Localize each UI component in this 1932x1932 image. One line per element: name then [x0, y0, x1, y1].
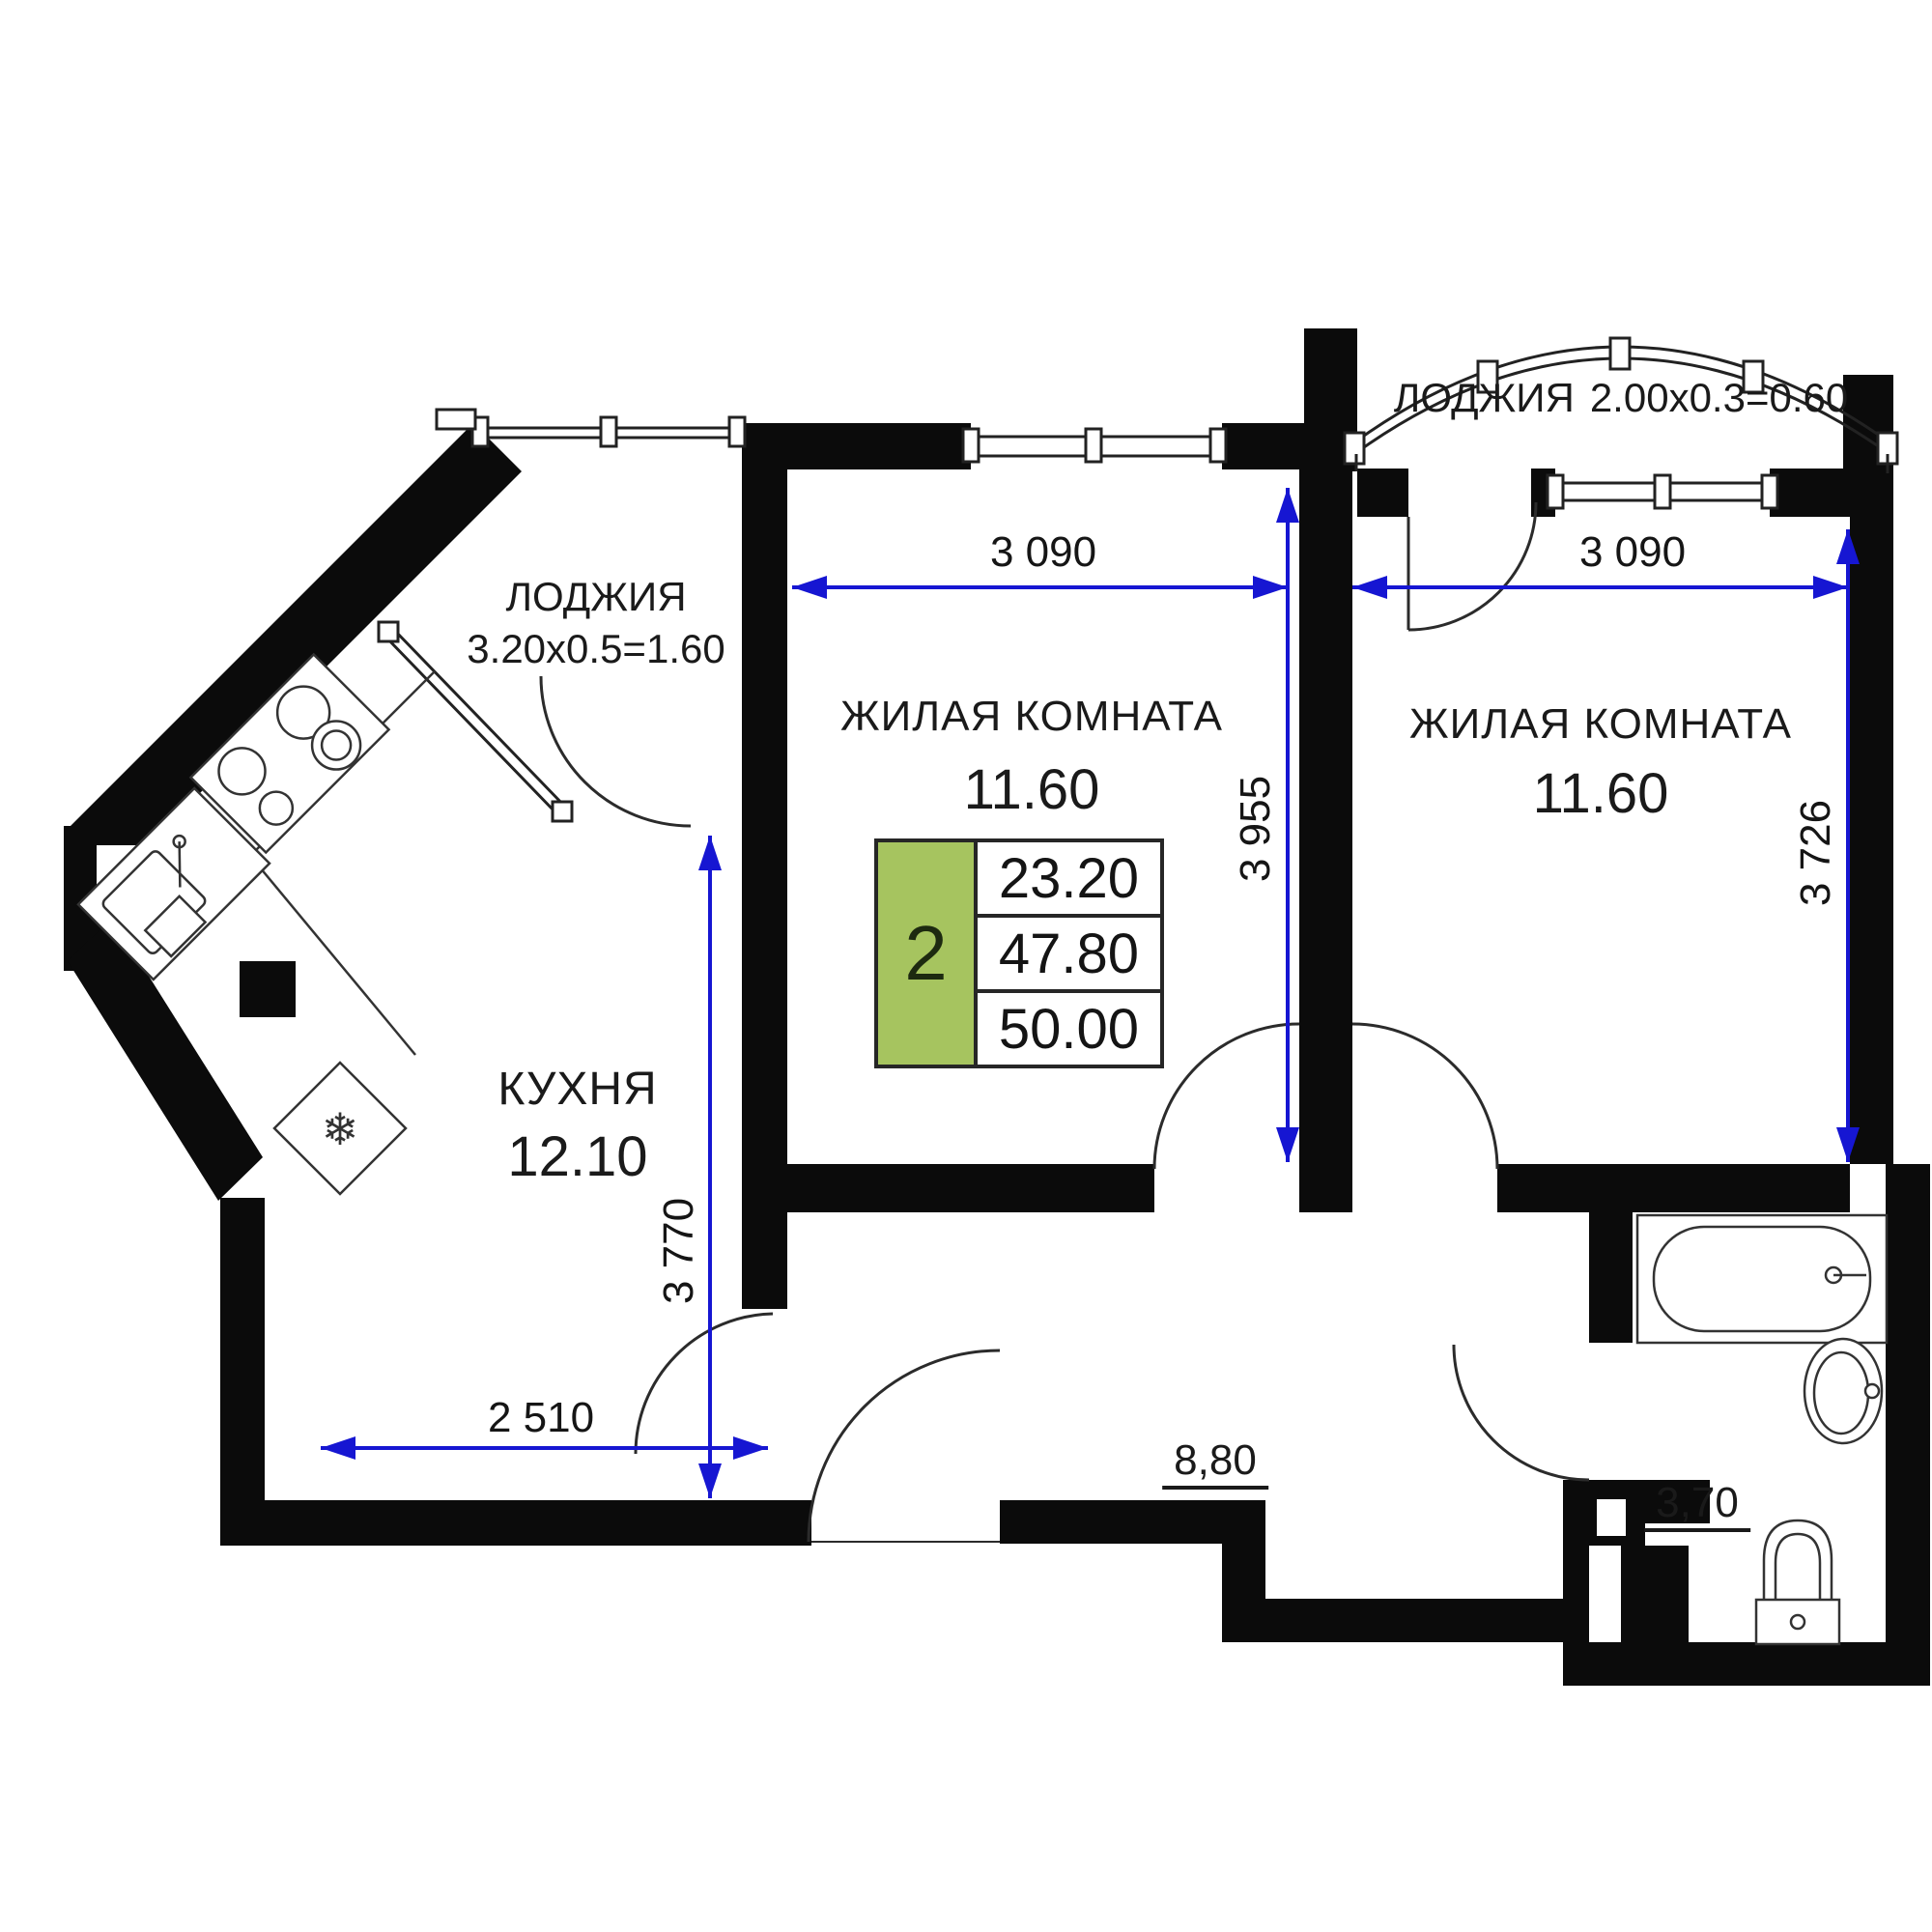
railing-post	[729, 417, 745, 446]
living-room-1-name: ЖИЛАЯ КОМНАТА	[840, 696, 1223, 738]
door-arc-bathroom	[1454, 1345, 1589, 1480]
dim-living2-width: 3 090	[1579, 531, 1686, 574]
loggia-left-size: 3.20x0.5=1.60	[467, 629, 724, 669]
door-arc-living1	[1154, 1024, 1299, 1169]
kitchen-area: 12.10	[507, 1129, 647, 1185]
living-area-cell: 23.20	[978, 842, 1160, 918]
kitchen-counter-edge	[241, 845, 415, 1055]
dim-arrow	[1253, 576, 1288, 599]
dim-living1-width: 3 090	[990, 531, 1096, 574]
wall-pier	[240, 961, 296, 1017]
dim-arrow	[698, 1463, 722, 1498]
total-area-cell: 50.00	[978, 993, 1160, 1065]
wall	[220, 1198, 265, 1502]
apartment-info-table: 2 23.20 47.80 50.00	[874, 838, 1164, 1068]
living-room-2-name: ЖИЛАЯ КОМНАТА	[1409, 703, 1792, 746]
wall	[1886, 1164, 1930, 1686]
wall	[1770, 469, 1850, 517]
dim-arrow	[1813, 576, 1848, 599]
window-mullion	[963, 429, 979, 462]
door-arc-entry	[809, 1350, 1000, 1542]
kitchen-name: КУХНЯ	[497, 1066, 657, 1113]
wall-room-divider	[1299, 469, 1352, 1164]
window-mullion	[1210, 429, 1226, 462]
toilet-button	[1791, 1615, 1804, 1629]
bathroom-area: 3,70	[1644, 1482, 1750, 1532]
loggia-left-name: ЛОДЖИЯ	[505, 577, 686, 617]
window-mullion	[1086, 429, 1101, 462]
wall	[1222, 1599, 1568, 1642]
dim-arrow	[733, 1436, 768, 1460]
loggia-right-name: ЛОДЖИЯ	[1394, 378, 1575, 418]
dim-arrow	[1276, 1127, 1299, 1162]
loggia-right-label: ЛОДЖИЯ 2.00x0.3=0.60	[1394, 378, 1848, 418]
window-mullion	[1655, 475, 1670, 508]
living-room-1-area: 11.60	[964, 762, 1100, 818]
living-room-2-area: 11.60	[1533, 766, 1669, 822]
dim-arrow	[1276, 488, 1299, 523]
wall	[1357, 469, 1408, 517]
door-arc-kitchen	[636, 1314, 773, 1454]
wall	[1850, 469, 1893, 1164]
railing-post	[379, 622, 398, 641]
dim-arrow	[698, 836, 722, 870]
area-without-loggia-cell: 47.80	[978, 918, 1160, 993]
fridge-snowflake-icon: ❄	[322, 1104, 359, 1154]
floor-plan: ❄ ЛОДЖИЯ 3.20x0.5=1.60 ЛОДЖИЯ 2.00x0.3=0…	[0, 0, 1932, 1932]
wall	[220, 1500, 811, 1546]
dim-arrow	[1352, 576, 1387, 599]
dim-kitchen-width: 2 510	[488, 1397, 594, 1439]
window-mullion	[1548, 475, 1563, 508]
duct	[1597, 1499, 1626, 1536]
washbasin-inner	[1814, 1352, 1868, 1434]
wall	[1299, 1164, 1352, 1212]
railing-post	[1610, 338, 1630, 369]
wall	[742, 469, 787, 1309]
dim-living2-depth: 3 726	[1795, 800, 1837, 906]
hallway-area: 8,80	[1162, 1439, 1268, 1490]
door-arc-loggia2	[1408, 502, 1536, 630]
wall	[1563, 1642, 1930, 1686]
railing-post	[1345, 433, 1364, 464]
wall	[1642, 1546, 1689, 1642]
dim-kitchen-depth: 3 770	[658, 1198, 700, 1304]
dim-living1-depth: 3 955	[1235, 776, 1277, 882]
dim-arrow	[792, 576, 827, 599]
dim-arrow	[321, 1436, 355, 1460]
railing-post	[601, 417, 616, 446]
rooms-count-cell: 2	[878, 842, 978, 1065]
washbasin-tap	[1865, 1384, 1879, 1398]
window-mullion	[1762, 475, 1777, 508]
wall	[787, 1164, 1154, 1212]
wall	[1589, 1212, 1633, 1343]
toilet-bowl	[1776, 1534, 1820, 1602]
window-sill	[437, 410, 475, 429]
railing-post	[553, 802, 572, 821]
wall	[742, 423, 971, 469]
wall	[1497, 1164, 1850, 1212]
loggia-right-size: 2.00x0.3=0.60	[1590, 378, 1848, 418]
duct	[1589, 1546, 1621, 1642]
door-arc-living2	[1352, 1024, 1497, 1169]
